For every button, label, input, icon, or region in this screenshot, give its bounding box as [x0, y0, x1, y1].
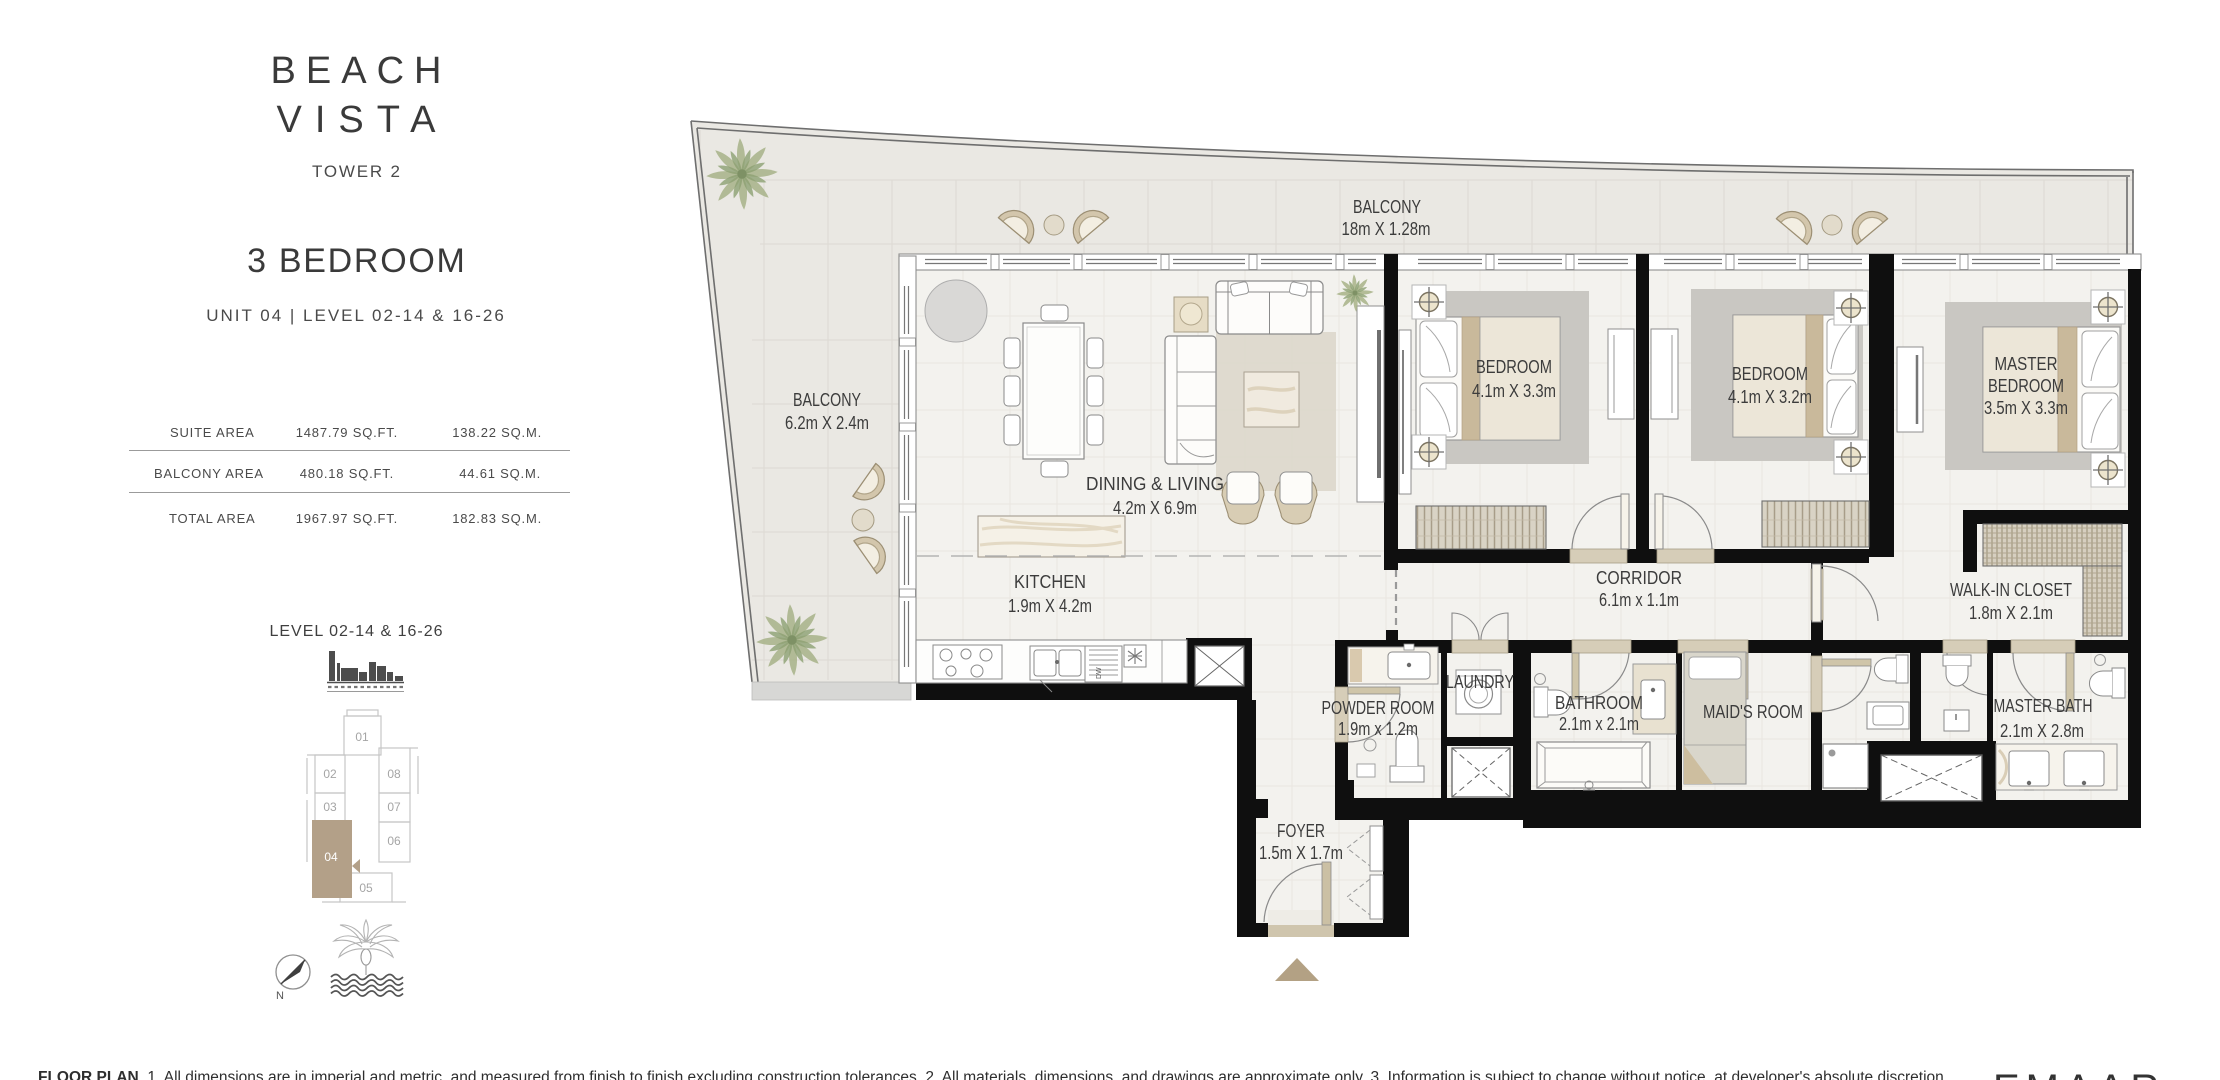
svg-text:01: 01 [355, 730, 369, 744]
svg-text:03: 03 [323, 800, 337, 814]
svg-text:6.2m X 2.4m: 6.2m X 2.4m [785, 412, 869, 433]
svg-text:DINING & LIVING: DINING & LIVING [1086, 473, 1224, 494]
svg-text:06: 06 [387, 834, 401, 848]
svg-text:2.1m x 2.1m: 2.1m x 2.1m [1559, 713, 1639, 734]
svg-text:KITCHEN: KITCHEN [1014, 571, 1086, 592]
svg-text:07: 07 [387, 800, 401, 814]
svg-text:6.1m x 1.1m: 6.1m x 1.1m [1599, 589, 1679, 610]
svg-text:BEDROOM: BEDROOM [1732, 363, 1808, 384]
svg-text:1.9m x 1.2m: 1.9m x 1.2m [1338, 718, 1418, 739]
svg-text:1.9m X 4.2m: 1.9m X 4.2m [1008, 595, 1092, 616]
svg-text:POWDER ROOM: POWDER ROOM [1322, 697, 1435, 718]
svg-text:DW: DW [1096, 667, 1103, 679]
svg-text:04: 04 [324, 850, 338, 864]
svg-text:MASTER BATH: MASTER BATH [1994, 695, 2093, 716]
svg-text:2.1m X 2.8m: 2.1m X 2.8m [2000, 720, 2084, 741]
svg-text:BEDROOM: BEDROOM [1988, 375, 2064, 396]
svg-text:BATHROOM: BATHROOM [1555, 692, 1643, 713]
svg-text:N: N [276, 990, 284, 1002]
svg-text:18m X 1.28m: 18m X 1.28m [1342, 218, 1431, 239]
svg-text:FOYER: FOYER [1277, 820, 1325, 841]
svg-text:4.1m X 3.3m: 4.1m X 3.3m [1472, 380, 1556, 401]
svg-text:1.8m X 2.1m: 1.8m X 2.1m [1969, 602, 2053, 623]
svg-text:WALK-IN CLOSET: WALK-IN CLOSET [1950, 579, 2072, 600]
svg-text:02: 02 [323, 767, 337, 781]
svg-text:BALCONY: BALCONY [1353, 196, 1421, 217]
svg-text:BALCONY: BALCONY [793, 389, 861, 410]
svg-text:1.5m X 1.7m: 1.5m X 1.7m [1259, 842, 1343, 863]
svg-text:3.5m X 3.3m: 3.5m X 3.3m [1984, 397, 2068, 418]
svg-text:LAUNDRY: LAUNDRY [1446, 671, 1514, 692]
svg-text:MAID'S ROOM: MAID'S ROOM [1703, 701, 1803, 722]
svg-text:4.2m X 6.9m: 4.2m X 6.9m [1113, 497, 1197, 518]
svg-text:CORRIDOR: CORRIDOR [1596, 567, 1682, 588]
svg-text:05: 05 [359, 881, 373, 895]
svg-text:BEDROOM: BEDROOM [1476, 356, 1552, 377]
svg-text:MASTER: MASTER [1995, 353, 2058, 374]
svg-text:4.1m X 3.2m: 4.1m X 3.2m [1728, 386, 1812, 407]
svg-text:08: 08 [387, 767, 401, 781]
